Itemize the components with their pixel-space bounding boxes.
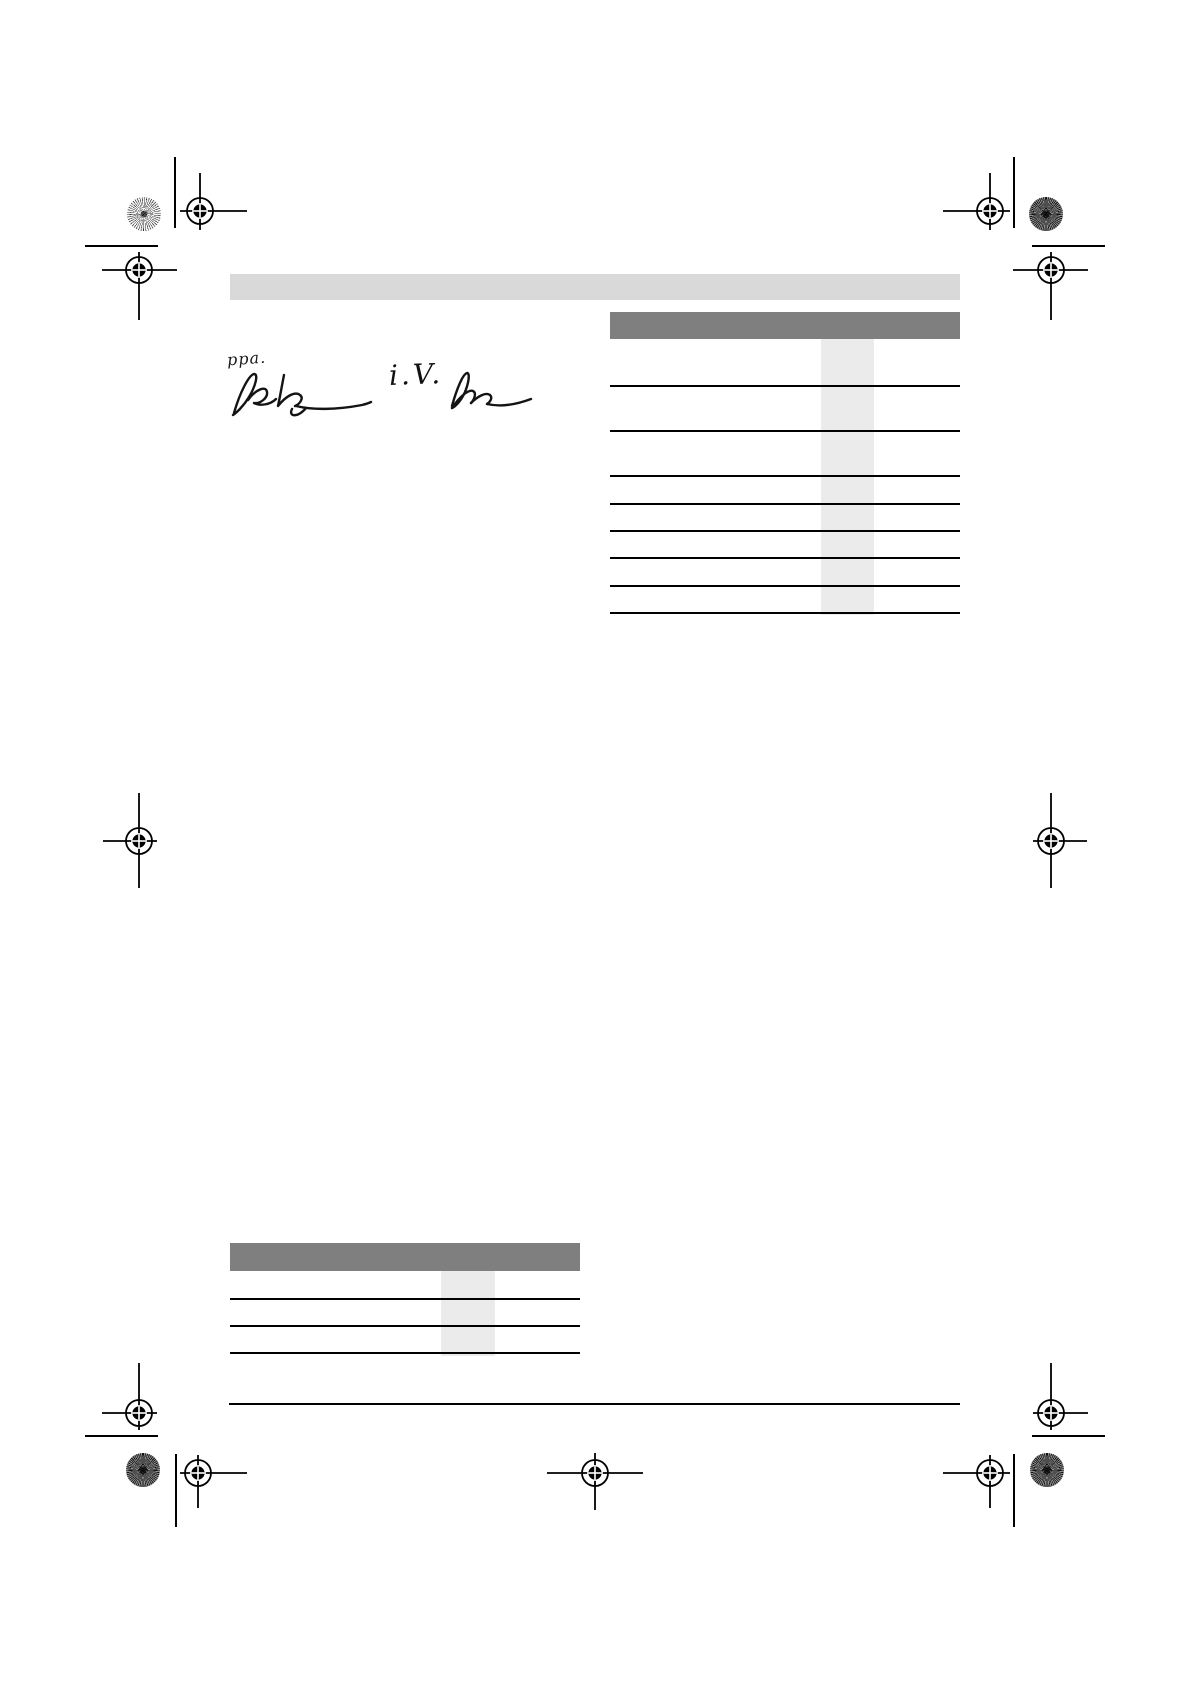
registration-target-icon (943, 1455, 1010, 1508)
right-table-row-rule (610, 530, 960, 532)
registration-target-icon (547, 1453, 643, 1510)
bottom-table-header (230, 1243, 580, 1271)
document-page: ppa. i.V. (0, 0, 1190, 1684)
sunburst-patch-icon (126, 1453, 160, 1487)
registration-target-icon (180, 1455, 247, 1508)
right-table-row-rule (610, 585, 960, 587)
registration-target-icon (180, 173, 247, 230)
print-marks-layer (0, 0, 1190, 1684)
registration-target-icon (1013, 252, 1088, 320)
proxy-label: i.V. (388, 357, 443, 392)
registration-target-icon (102, 252, 177, 320)
signature-right (452, 373, 531, 408)
bottom-table-row-rule (230, 1325, 580, 1327)
bottom-table-row-rule (230, 1352, 580, 1354)
registration-target-icon (943, 173, 1010, 230)
signature-left (233, 374, 371, 415)
footer-rule (229, 1403, 960, 1405)
handwritten-signatures (0, 0, 1190, 1684)
sunburst-patch-icon (1030, 1453, 1064, 1487)
right-table-row-rule (610, 557, 960, 559)
right-table-row-rule (610, 612, 960, 614)
right-table-row-rule (610, 385, 960, 387)
registration-target-icon (1033, 793, 1087, 888)
registration-target-icon (103, 793, 157, 888)
right-table-row-rule (610, 503, 960, 505)
sunburst-patch-icon (1029, 197, 1063, 231)
right-table-highlight-column (821, 339, 874, 615)
registration-target-icon (102, 1363, 157, 1430)
ppa-label: ppa. (226, 348, 266, 370)
page-header-band (230, 274, 960, 300)
bottom-table-highlight-column (441, 1271, 495, 1356)
right-table-row-rule (610, 475, 960, 477)
sunburst-patch-icon (127, 197, 161, 231)
right-table-row-rule (610, 430, 960, 432)
bottom-table-row-rule (230, 1298, 580, 1300)
right-table-header (610, 312, 960, 339)
registration-target-icon (1033, 1363, 1088, 1430)
